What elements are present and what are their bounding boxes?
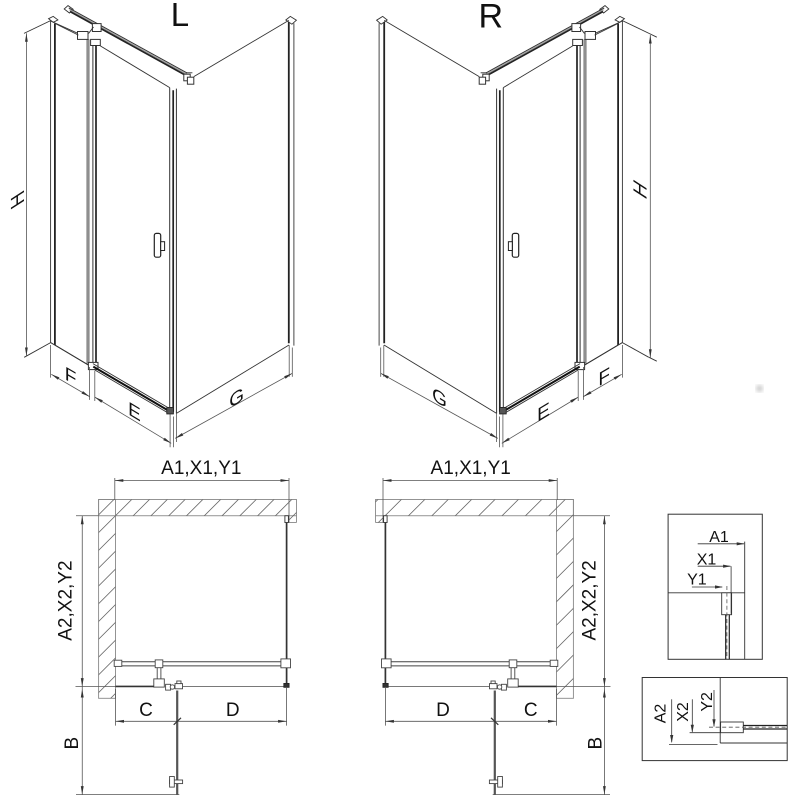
svg-text:R: R [479,0,504,35]
svg-text:X2: X2 [675,702,692,722]
svg-text:F: F [65,362,77,390]
svg-text:D: D [226,700,240,721]
svg-text:B: B [586,737,607,750]
svg-text:G: G [432,383,447,413]
svg-text:A1,X1,Y1: A1,X1,Y1 [431,458,511,479]
svg-text:G: G [229,383,244,413]
svg-text:H: H [8,186,29,213]
svg-text:H: H [630,176,651,203]
svg-text:A1,X1,Y1: A1,X1,Y1 [161,458,241,479]
svg-text:D: D [436,700,450,721]
svg-text:A2,X2,Y2: A2,X2,Y2 [580,560,601,640]
svg-text:A2,X2,Y2: A2,X2,Y2 [55,560,76,640]
svg-text:Y1: Y1 [687,571,707,588]
svg-text:E: E [537,398,550,427]
svg-text:L: L [171,0,189,33]
svg-text:C: C [524,700,538,721]
svg-text:A2: A2 [652,704,669,724]
svg-text:F: F [598,363,610,391]
svg-text:C: C [139,700,153,721]
svg-text:B: B [62,737,83,750]
svg-text:E: E [128,398,141,427]
